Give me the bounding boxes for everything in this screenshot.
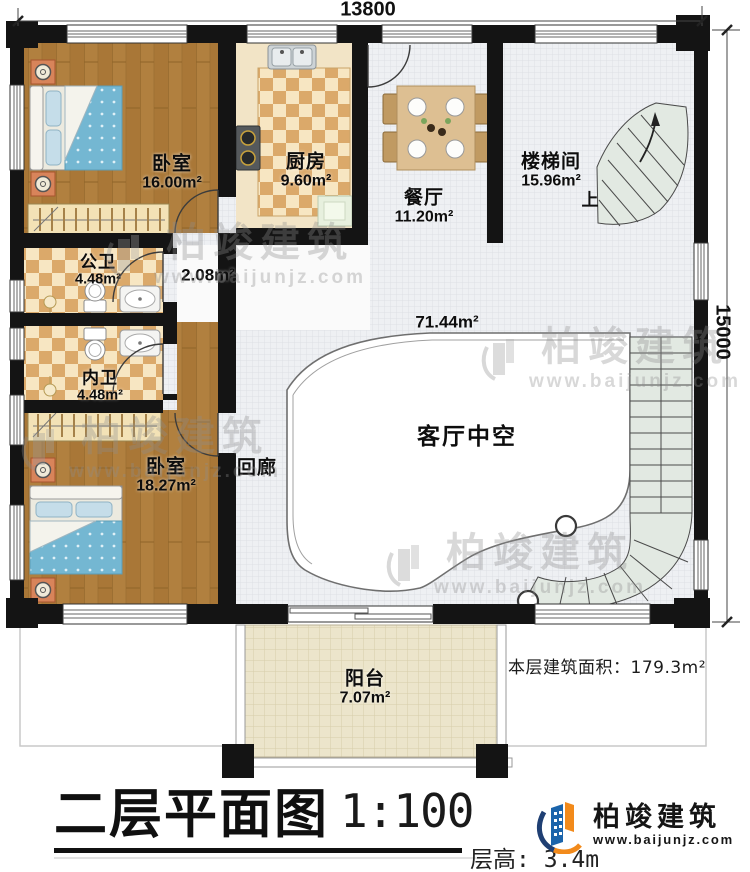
balcony-railing-left xyxy=(236,625,245,763)
title-underline-thin xyxy=(54,857,488,859)
stove xyxy=(236,126,260,170)
room-label-bedroom1: 卧室 16.00m² xyxy=(142,153,202,192)
kitchen-tile xyxy=(258,68,350,216)
window xyxy=(247,25,337,43)
company-brand: 柏竣建筑 www.baijunjz.com xyxy=(534,798,734,854)
balcony-railing-right xyxy=(497,625,506,763)
company-text: 柏竣建筑 www.baijunjz.com xyxy=(593,804,734,849)
window xyxy=(535,25,657,43)
window xyxy=(10,280,24,312)
floor-area-label: 本层建筑面积： xyxy=(508,658,631,678)
wardrobe-2 xyxy=(28,410,161,441)
stairs-up-label: 上 xyxy=(582,186,599,211)
bed-1 xyxy=(30,86,122,170)
hall-floor xyxy=(177,245,370,330)
floorplan-drawing xyxy=(0,0,750,872)
kitchen-counter-board-inner xyxy=(324,202,345,220)
window xyxy=(694,243,708,300)
stair-newel-top xyxy=(556,516,576,536)
window xyxy=(63,604,187,624)
room-label-public-bath: 公卫 4.48m² xyxy=(75,252,121,287)
company-name: 柏竣建筑 xyxy=(593,802,721,832)
title-underline xyxy=(54,848,462,853)
kitchen-sink xyxy=(268,45,316,69)
room-label-stairwell: 楼梯间 15.96m² xyxy=(521,151,581,190)
room-label-bedroom2: 卧室 18.27m² xyxy=(136,456,196,495)
dining-table-set xyxy=(383,86,489,170)
company-logo-icon xyxy=(534,798,586,854)
title-block: 二层平面图 1:100 层高: 3.4m 柏竣建筑 www.baijunjz.c… xyxy=(0,762,750,872)
plan-title: 二层平面图 xyxy=(54,772,329,848)
floor-area-note: 本层建筑面积：179.3m² xyxy=(508,653,706,678)
room-label-void-area: 71.44m² xyxy=(415,312,478,331)
window xyxy=(535,604,650,624)
dimension-right: 15000 xyxy=(711,304,734,360)
window xyxy=(10,395,24,445)
bed-2 xyxy=(30,486,122,574)
floorplan-page: 13800 15000 卧室 16.00m² 厨房 9.60m² 餐厅 11.2… xyxy=(0,0,750,872)
room-label-private-bath: 内卫 4.48m² xyxy=(77,368,123,403)
room-label-hall-area: 2.08m² xyxy=(181,265,235,284)
window xyxy=(67,25,187,43)
room-label-balcony: 阳台 7.07m² xyxy=(340,668,391,707)
room-label-kitchen: 厨房 9.60m² xyxy=(281,151,332,190)
window xyxy=(10,505,24,580)
window xyxy=(694,540,708,590)
wardrobe-1 xyxy=(28,204,169,235)
dimension-top: 13800 xyxy=(340,0,396,22)
floor-height-label: 层高: xyxy=(470,847,530,872)
plan-scale: 1:100 xyxy=(340,784,473,838)
window xyxy=(10,328,24,360)
room-label-corridor: 回廊 xyxy=(237,457,277,478)
room-label-void: 客厅中空 xyxy=(417,424,517,450)
sliding-door xyxy=(288,606,433,622)
room-label-dining: 餐厅 11.20m² xyxy=(395,187,454,226)
company-website: www.baijunjz.com xyxy=(593,832,734,847)
window xyxy=(382,25,472,43)
window xyxy=(10,85,24,170)
floor-area-value: 179.3m² xyxy=(631,658,707,678)
